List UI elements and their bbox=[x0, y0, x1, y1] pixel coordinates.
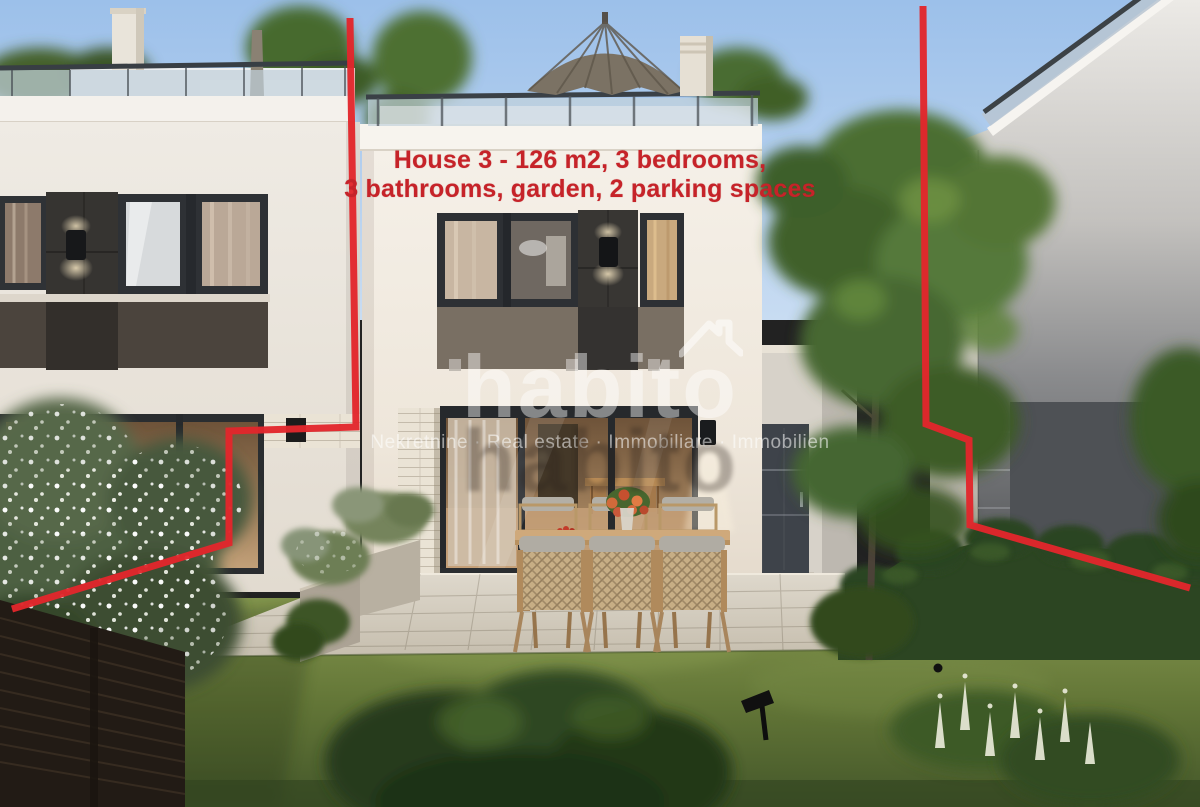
architectural-rendering bbox=[0, 0, 1200, 807]
property-annotation: House 3 - 126 m2, 3 bedrooms, 3 bathroom… bbox=[310, 146, 850, 204]
annotation-line-1: House 3 - 126 m2, 3 bedrooms, bbox=[310, 146, 850, 175]
chimney bbox=[680, 36, 713, 96]
property-listing-image: House 3 - 126 m2, 3 bedrooms, 3 bathroom… bbox=[0, 0, 1200, 807]
annotation-line-2: 3 bathrooms, garden, 2 parking spaces bbox=[310, 175, 850, 204]
